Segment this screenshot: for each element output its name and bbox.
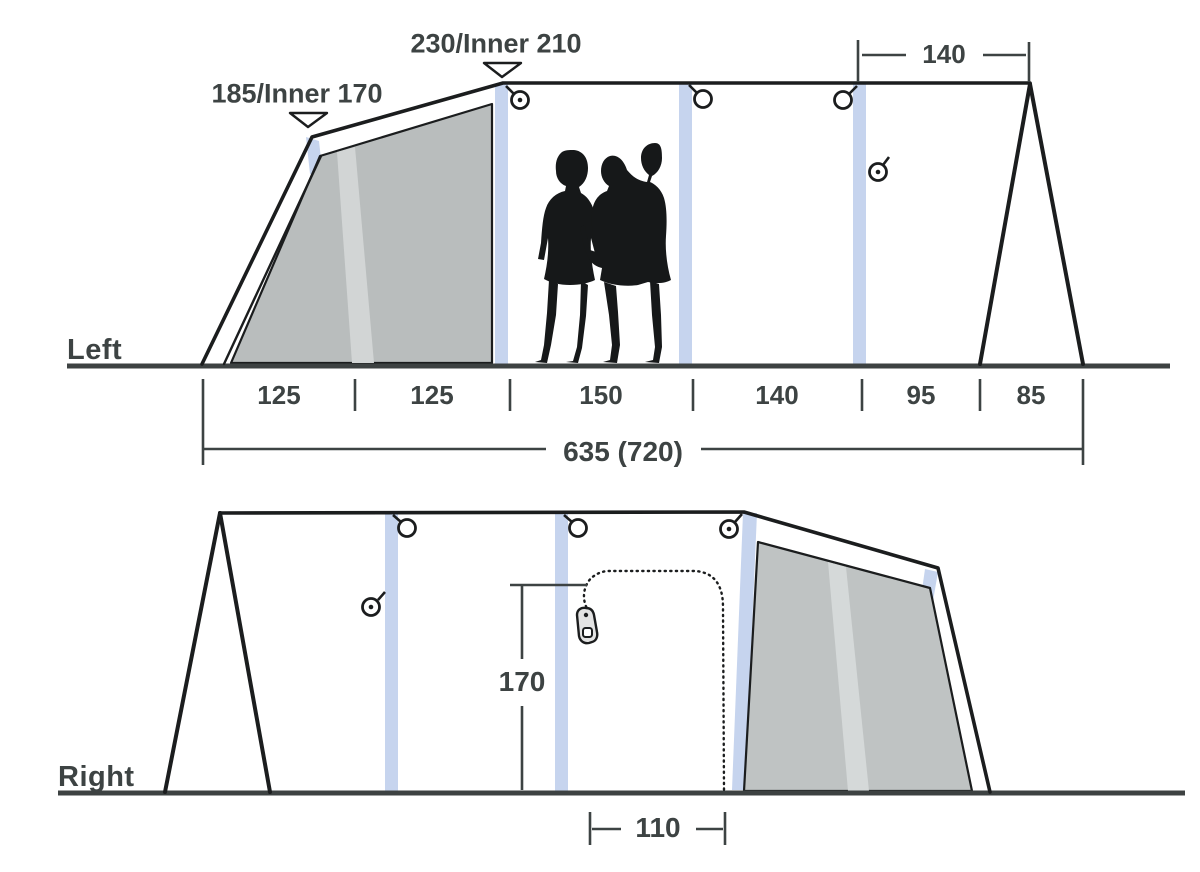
right-side-view bbox=[58, 512, 1185, 845]
floor-segment-value: 125 bbox=[257, 382, 300, 408]
floor-segment-value: 125 bbox=[410, 382, 453, 408]
floor-segment-value: 140 bbox=[755, 382, 798, 408]
door-outline-dotted bbox=[584, 571, 724, 790]
window-panel bbox=[231, 104, 492, 363]
air-pole bbox=[555, 514, 568, 792]
front-height-label: 185/Inner 170 bbox=[211, 81, 382, 108]
total-length-value: 635 (720) bbox=[563, 438, 683, 466]
height-marker-arrow-icon bbox=[484, 63, 521, 77]
right-view-label: Right bbox=[58, 763, 135, 792]
left-view-label: Left bbox=[67, 336, 122, 365]
floor-segment-value: 150 bbox=[579, 382, 622, 408]
floor-segment-value: 95 bbox=[907, 382, 936, 408]
window-panel bbox=[744, 542, 972, 791]
air-pole bbox=[495, 84, 508, 364]
air-pole bbox=[385, 514, 398, 792]
door-height-value: 170 bbox=[499, 668, 546, 696]
door-width-value: 110 bbox=[635, 814, 680, 842]
guyline-ring-icon bbox=[870, 157, 890, 181]
floor-segment-value: 85 bbox=[1017, 382, 1046, 408]
rear-top-width-value: 140 bbox=[922, 41, 965, 67]
height-marker-arrow-icon bbox=[290, 113, 327, 127]
air-pole bbox=[679, 84, 692, 364]
guyline-ring-icon bbox=[689, 85, 712, 108]
guyline-ring-icon bbox=[721, 514, 743, 538]
people-silhouette-icon bbox=[535, 143, 671, 363]
guyline-ring-icon bbox=[363, 592, 386, 616]
peak-height-label: 230/Inner 210 bbox=[410, 31, 581, 58]
guyline-rings bbox=[363, 514, 743, 616]
zipper-pull-icon bbox=[577, 608, 597, 643]
tent-dimensions-diagram: Left 185/Inner 170 230/Inner 210 140 125… bbox=[0, 0, 1200, 872]
air-pole bbox=[853, 84, 866, 364]
guyline-ring-icon bbox=[506, 86, 529, 109]
